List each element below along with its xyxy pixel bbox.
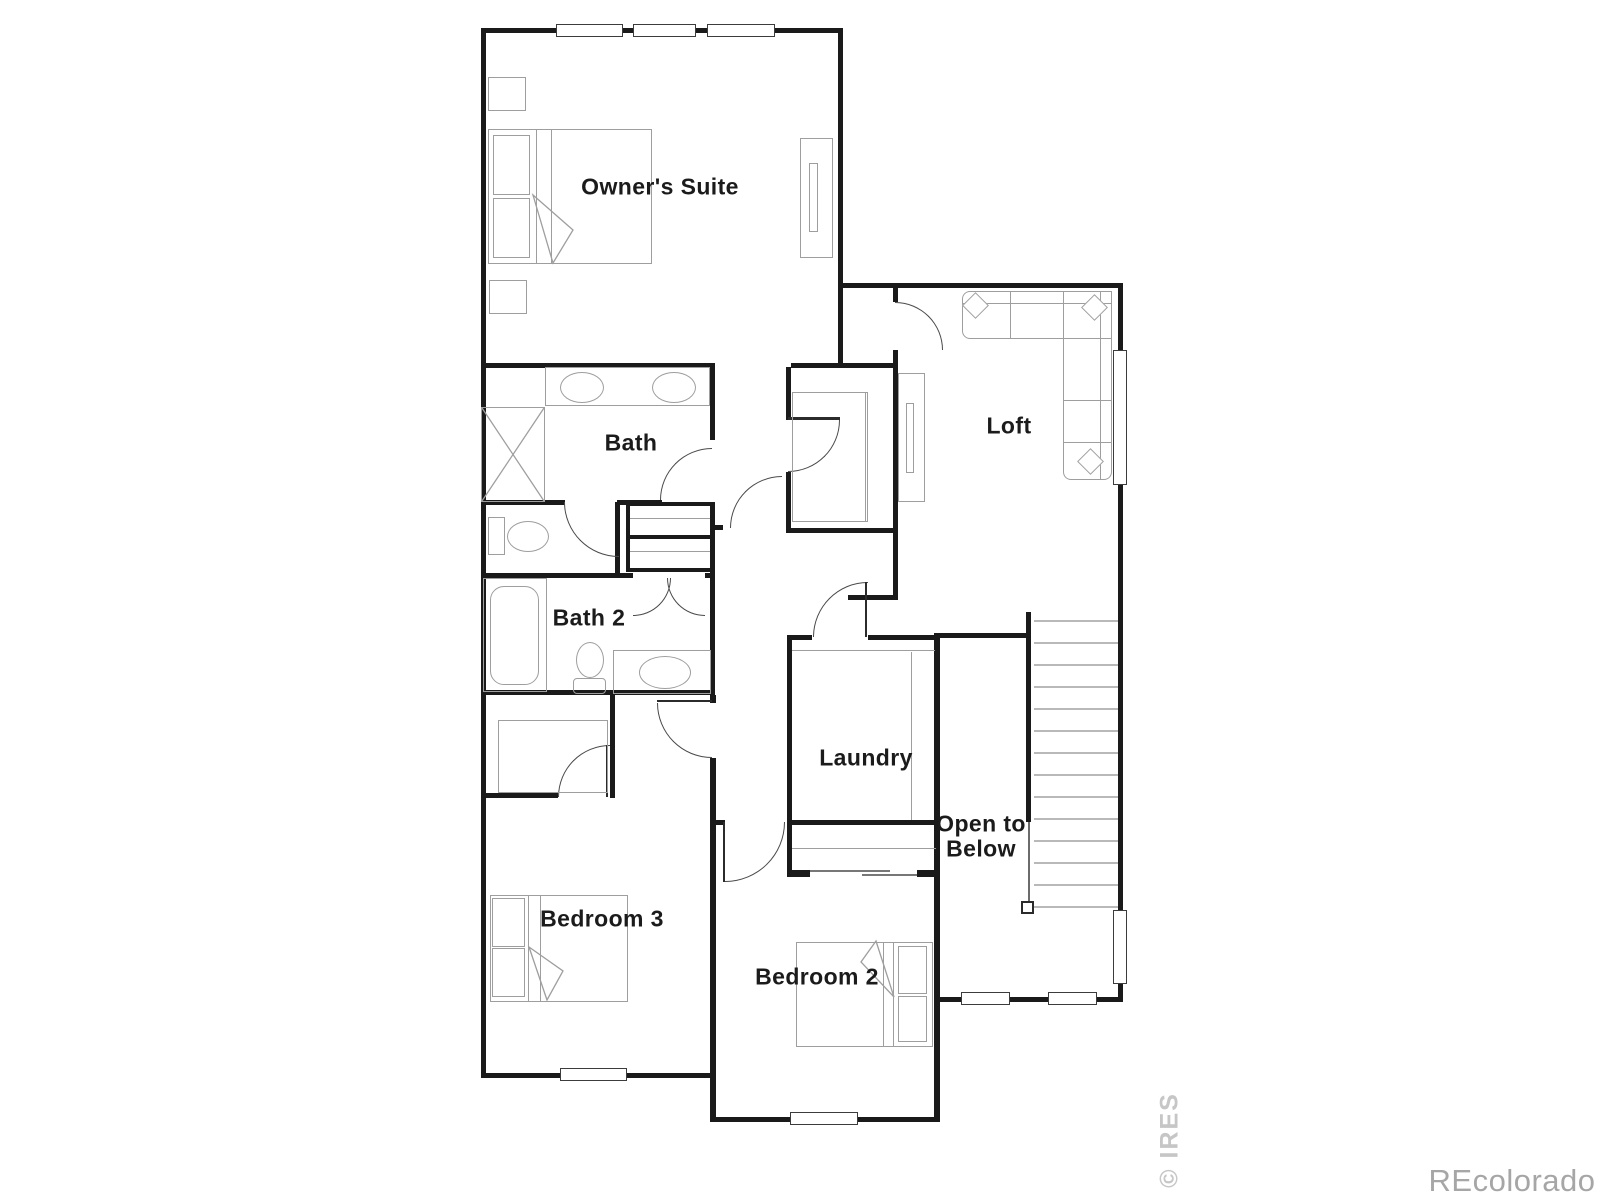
- stair-tread: [1034, 620, 1118, 622]
- window: [556, 24, 623, 37]
- stair-newel-post: [1021, 901, 1034, 914]
- stair-tread: [1034, 752, 1118, 754]
- stair-tread: [1034, 730, 1118, 732]
- wall-bedroom3-top: [481, 793, 558, 798]
- wall-linen-bottom: [626, 568, 712, 572]
- stair-tread: [1034, 664, 1118, 666]
- bed-headboard-line: [883, 942, 884, 1047]
- door-leaf-laundry: [865, 582, 867, 637]
- stair-tread: [1034, 818, 1118, 820]
- sofa-cushion-line: [1010, 291, 1011, 339]
- stair-tread: [1034, 840, 1118, 842]
- wall-exterior-left: [481, 28, 486, 1078]
- sink: [652, 372, 696, 403]
- stair-tread: [1034, 862, 1118, 864]
- window: [1113, 350, 1127, 485]
- door-arc-bath: [660, 448, 712, 500]
- window: [707, 24, 775, 37]
- stair-tread: [1034, 774, 1118, 776]
- bed-headboard-line: [893, 942, 894, 1047]
- toilet-tank: [573, 678, 606, 694]
- pillow: [492, 948, 525, 997]
- laundry-counter-line: [911, 652, 912, 820]
- door-arc-bedroom3: [657, 703, 712, 758]
- wall-owners-suite-right: [838, 28, 843, 368]
- closet-shelf-outline: [498, 720, 608, 793]
- wall-loft-left-lower: [893, 350, 898, 367]
- floorplan-canvas: Owner's Suite Bath Bath 2 Loft Laundry O…: [0, 0, 1600, 1200]
- closet-jamb: [917, 870, 937, 877]
- door-leaf-bedroom2: [723, 822, 725, 882]
- sofa-cushion-line: [1063, 400, 1112, 401]
- closet-shelf-outline: [792, 392, 868, 522]
- pillow: [492, 898, 525, 947]
- wall-linen-left: [626, 502, 630, 572]
- tv-on-dresser: [809, 163, 818, 232]
- pillow: [898, 946, 927, 994]
- pillow: [898, 996, 927, 1042]
- room-label-bath2: Bath 2: [553, 605, 626, 632]
- closet-slider-door: [862, 874, 917, 876]
- tv: [906, 403, 914, 473]
- laundry-counter-line: [792, 650, 935, 651]
- bed-headboard-line: [551, 129, 552, 264]
- window: [790, 1112, 858, 1125]
- room-label-owners-suite: Owner's Suite: [581, 174, 739, 201]
- sink: [639, 656, 691, 689]
- watermark-recolorado: REcolorado: [1429, 1163, 1596, 1199]
- door-arc-loft-entry: [895, 302, 943, 350]
- stair-railing: [1026, 612, 1031, 822]
- shower: [481, 407, 545, 502]
- closet-rod: [865, 392, 866, 522]
- wall-closet-bottom: [788, 528, 898, 533]
- nightstand: [488, 77, 526, 111]
- wall-bedroom-divider: [710, 758, 716, 1122]
- wall-laundry-top-right: [868, 635, 938, 640]
- wall-stair-hall: [938, 633, 1030, 638]
- wall-laundry-bottom: [790, 820, 937, 825]
- wall-linen-top: [626, 502, 712, 506]
- stair-tread: [1034, 686, 1118, 688]
- room-label-loft: Loft: [986, 413, 1031, 440]
- window: [961, 992, 1010, 1005]
- sofa-back-line: [1100, 291, 1101, 480]
- linen-shelf: [630, 551, 710, 552]
- room-label-laundry: Laundry: [819, 745, 913, 772]
- wall-loft-top: [838, 283, 1123, 288]
- room-label-bedroom3: Bedroom 3: [540, 906, 664, 933]
- toilet-tank: [488, 517, 505, 555]
- pillow: [493, 198, 530, 258]
- wall-closet-top: [791, 363, 898, 368]
- window: [560, 1068, 627, 1081]
- wall-linen-stub: [715, 525, 723, 530]
- tub: [490, 586, 539, 685]
- nightstand: [489, 280, 527, 314]
- sink: [560, 372, 604, 403]
- wall-bedroom3-closet-right: [610, 695, 615, 798]
- stair-tread: [1034, 796, 1118, 798]
- closet-slider-door: [810, 870, 890, 872]
- room-label-bath: Bath: [605, 430, 658, 457]
- door-arc-bath2-left: [633, 578, 671, 616]
- stair-tread: [1034, 708, 1118, 710]
- wall-closet-left-upper: [786, 367, 791, 420]
- room-label-open-to-below: Open to Below: [925, 812, 1037, 863]
- wall-laundry-top-left: [792, 635, 812, 640]
- wall-bedroom2-right: [934, 633, 940, 1122]
- wall-linen-middle: [626, 535, 712, 539]
- toilet-bowl: [507, 521, 549, 552]
- door-leaf-bedroom3: [657, 700, 712, 702]
- stair-tread: [1034, 642, 1118, 644]
- wall-laundry-left: [787, 635, 792, 877]
- stair-tread: [1034, 906, 1118, 908]
- sofa-cushion-line: [1063, 442, 1112, 443]
- closet-jamb: [790, 870, 810, 877]
- door-arc-toilet-room: [564, 502, 619, 557]
- door-arc-bedroom2: [725, 822, 785, 882]
- bed-headboard-line: [536, 129, 537, 264]
- pillow: [493, 135, 530, 195]
- watermark-ires: © IRES: [1156, 1092, 1185, 1188]
- window: [1113, 910, 1127, 984]
- door-arc-hall: [730, 476, 782, 528]
- door-arc-bath2-right: [667, 578, 705, 616]
- room-label-bedroom2: Bedroom 2: [755, 964, 879, 991]
- wall-bath-right: [710, 363, 715, 440]
- bed-headboard-line: [528, 895, 529, 1002]
- closet-shelf: [792, 848, 936, 849]
- window: [633, 24, 696, 37]
- linen-shelf: [630, 518, 710, 519]
- wall-loft-left-upper: [893, 283, 898, 302]
- door-arc-laundry: [813, 582, 868, 637]
- stair-tread: [1034, 884, 1118, 886]
- wall-closet-left-lower: [786, 472, 791, 533]
- window: [1048, 992, 1097, 1005]
- toilet-bowl: [576, 642, 604, 678]
